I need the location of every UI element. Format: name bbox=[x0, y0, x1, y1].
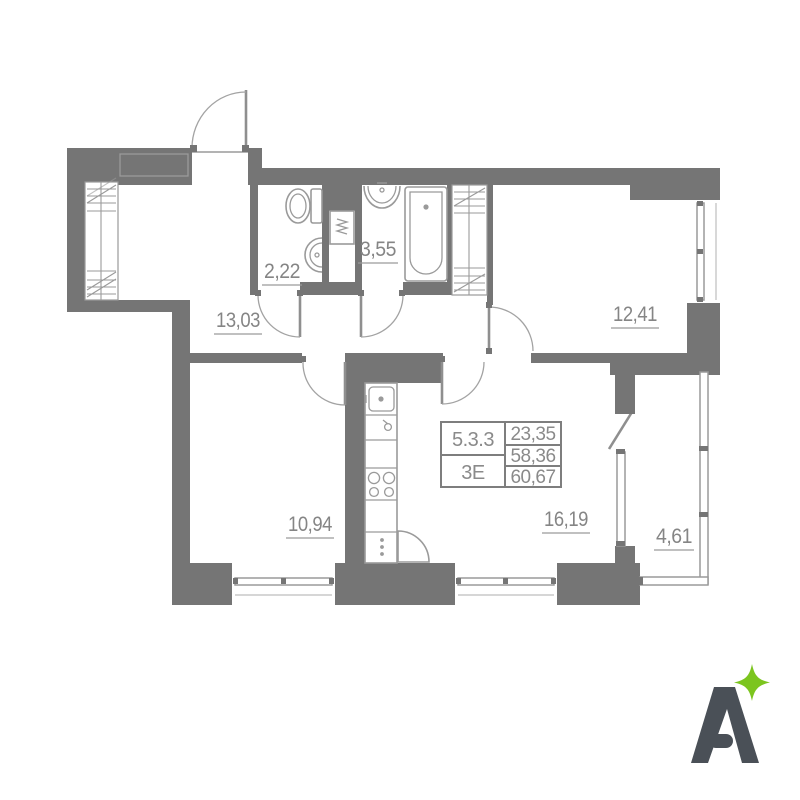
unit-type: 3Е bbox=[461, 462, 485, 484]
door-wc bbox=[255, 290, 303, 337]
logo-letter bbox=[691, 687, 759, 763]
area-total: 60,67 bbox=[510, 467, 555, 488]
door-kitchen-living bbox=[439, 356, 484, 404]
vent-shaft-left bbox=[85, 178, 118, 300]
door-room2 bbox=[300, 356, 345, 405]
area-living: 23,35 bbox=[510, 424, 555, 445]
logo bbox=[691, 664, 770, 763]
window-bedroom bbox=[687, 200, 720, 303]
room-label-bathroom: 3,55 bbox=[360, 238, 396, 261]
info-table: 5.3.3 3Е 23,35 58,36 60,67 bbox=[441, 422, 561, 488]
area-without-balcony: 58,36 bbox=[510, 446, 555, 467]
room-label-balcony: 4,61 bbox=[656, 525, 692, 548]
floor-plan-page: 13,03 2,22 3,55 12,41 10,94 16,19 4,61 5… bbox=[0, 0, 800, 800]
room-label-room2: 10,94 bbox=[288, 513, 333, 536]
dishwasher-icon bbox=[380, 538, 384, 556]
balcony-door-block bbox=[609, 408, 634, 546]
bathtub-icon bbox=[405, 187, 447, 281]
floor-plan: 13,03 2,22 3,55 12,41 10,94 16,19 4,61 5… bbox=[0, 0, 800, 800]
room-label-bedroom: 12,41 bbox=[613, 303, 657, 326]
room-label-kitchen-living: 16,19 bbox=[544, 508, 588, 531]
kitchen-corner-door bbox=[398, 531, 429, 562]
window-room2 bbox=[232, 563, 335, 605]
door-bathroom bbox=[358, 290, 405, 337]
sparkle-icon bbox=[734, 664, 770, 701]
room-label-wc: 2,22 bbox=[264, 260, 300, 283]
door-bedroom bbox=[486, 302, 533, 354]
toilet-icon bbox=[286, 189, 322, 223]
bathroom-sink-icon bbox=[364, 183, 400, 208]
room-label-hallway: 13,03 bbox=[216, 309, 260, 332]
balcony-glazing bbox=[637, 372, 708, 585]
vent-shaft-right bbox=[452, 185, 487, 295]
wc-sink-icon bbox=[305, 238, 322, 272]
kitchen-counter bbox=[365, 383, 397, 563]
entrance-door bbox=[190, 90, 249, 152]
logo-crossbar bbox=[709, 734, 733, 748]
window-kitchen-living bbox=[455, 563, 557, 605]
washing-machine-icon bbox=[330, 211, 354, 244]
unit-number: 5.3.3 bbox=[452, 429, 494, 451]
